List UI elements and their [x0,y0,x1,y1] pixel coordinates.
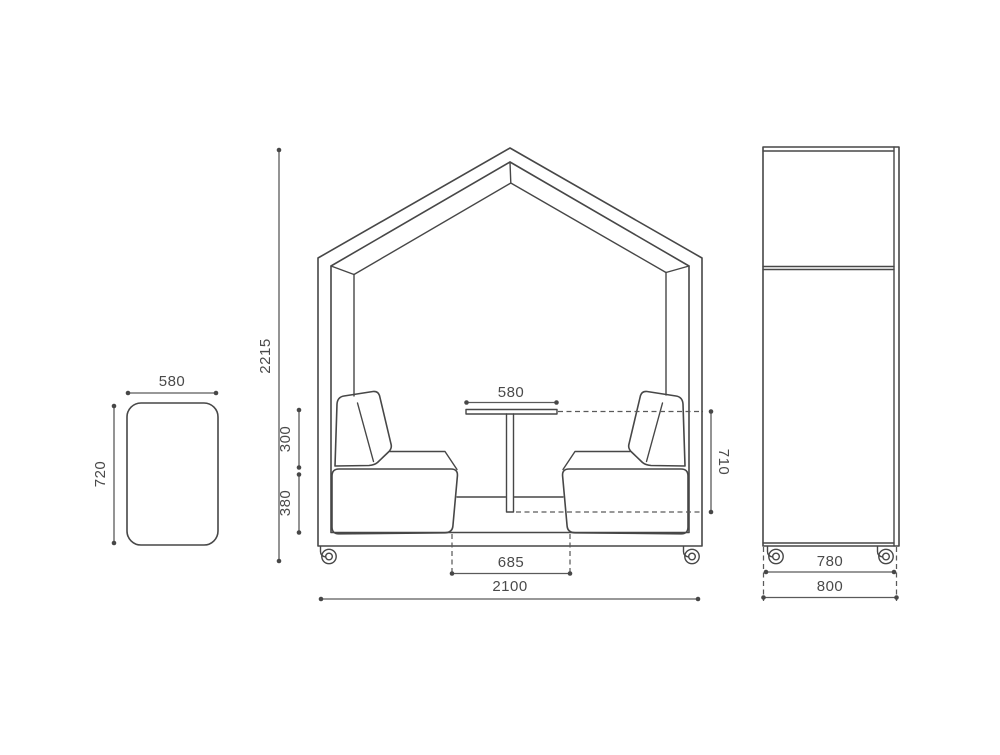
right-seat-top-edge [563,452,630,470]
right-backrest [629,391,685,466]
drawing-canvas: 580 720 [0,0,1000,755]
wall-far-edges [354,273,666,397]
dim-top-depth-label: 720 [92,461,109,488]
wall-top-edges [331,266,689,275]
dim-endpoint [277,559,282,564]
dim-endpoint [214,391,219,396]
caster-hub [773,553,780,560]
dim-backrest-label: 300 [277,426,294,453]
top-view-cushion-outline [127,403,218,545]
caster-hub [689,553,696,560]
table-pedestal [507,414,514,512]
dim-endpoint [892,570,897,575]
dim-endpoint [761,595,766,600]
left-backrest-fold [358,403,374,462]
dim-top-width-label: 580 [159,373,186,390]
technical-drawing: 580 720 [0,0,1000,755]
dim-endpoint [450,571,455,576]
dim-endpoint [112,541,117,546]
pod-frame-inner [331,162,689,533]
roof-apex-edge [510,162,511,183]
dim-side-depth-label: 800 [817,578,844,595]
dim-endpoint [709,409,714,414]
dim-endpoint [464,400,469,405]
left-seat-top-edge [390,452,457,470]
pod-frame-outer [318,148,702,546]
dim-endpoint [709,510,714,515]
side-roof-divider [763,267,894,270]
dim-endpoint [297,530,302,535]
dim-wheelbase-label: 780 [817,553,844,570]
side-left-caster [768,547,784,564]
dim-table-width-label: 580 [498,384,525,401]
dim-endpoint [297,465,302,470]
side-view: 780 800 [761,147,899,601]
dim-endpoint [319,597,324,602]
dim-endpoint [297,472,302,477]
side-outline [763,147,899,546]
dim-seat-height-label: 380 [277,490,294,517]
dim-endpoint [554,400,559,405]
dim-endpoint [764,570,769,575]
top-view: 580 720 [92,373,218,545]
front-left-caster [321,547,337,564]
front-view: 2215 300 380 580 710 685 2100 [257,148,732,602]
dim-total-height-label: 2215 [257,338,274,373]
right-seat-base [563,469,688,534]
left-backrest [335,391,391,466]
left-seat [332,391,457,533]
dim-table-height-label: 710 [715,449,732,476]
dim-total-width-label: 2100 [492,578,527,595]
front-right-caster [684,547,700,564]
roof-far-edges [354,183,666,275]
left-seat-base [332,469,457,534]
dim-endpoint [112,404,117,409]
table-top [466,410,557,415]
dim-endpoint [568,571,573,576]
caster-hub [883,553,890,560]
dim-seat-gap-label: 685 [498,554,525,571]
dim-endpoint [894,595,899,600]
dim-endpoint [126,391,131,396]
side-right-caster [878,547,894,564]
dim-endpoint [696,597,701,602]
dim-endpoint [277,148,282,153]
dim-endpoint [297,408,302,413]
caster-hub [326,553,333,560]
